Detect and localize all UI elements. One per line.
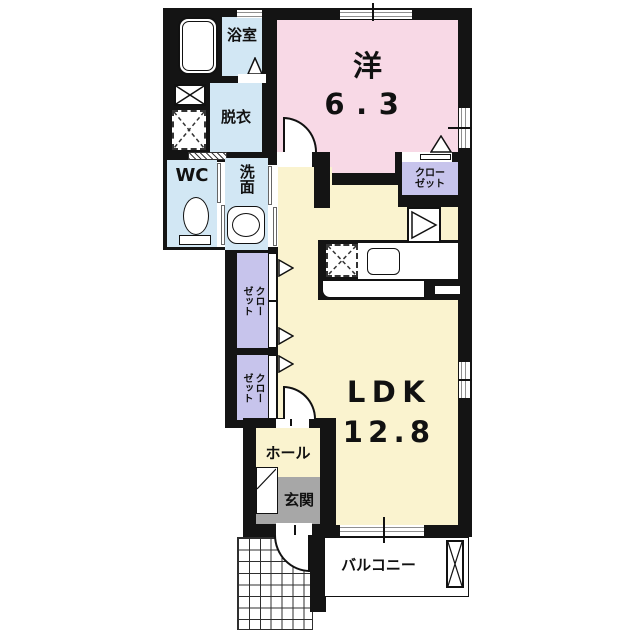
- room-dressing: 脱衣: [210, 83, 262, 152]
- bathtub-icon: [178, 17, 218, 75]
- closet-corridor-upper: クロー ゼット: [237, 253, 268, 348]
- bathroom-door-opening: [238, 74, 266, 83]
- toilet-tank-icon: [179, 235, 211, 245]
- closet-door-panel: [268, 355, 277, 420]
- washbasin-bowl: [232, 213, 260, 237]
- kitchen-counter-front: [322, 280, 425, 298]
- western-size: 6.3: [324, 89, 410, 121]
- closet-label-line1: クロー: [253, 286, 264, 316]
- room-ldk-upper-left: [332, 185, 398, 243]
- ldk-size: 12.8: [343, 417, 435, 449]
- toilet-label: WC: [175, 166, 208, 186]
- bathtub-inner-line: [182, 21, 214, 71]
- western-label: 洋: [353, 51, 382, 83]
- toilet-icon: [183, 197, 209, 235]
- closet-label-line1: クロー: [253, 373, 264, 403]
- balcony-divider-icon: [446, 540, 464, 588]
- closet-label-line2: ゼット: [415, 179, 445, 190]
- room-toilet: WC: [167, 160, 217, 247]
- window-tick: [372, 3, 374, 21]
- closet-door-triangle-icon: [278, 355, 294, 373]
- entrance-label: 玄関: [284, 492, 314, 509]
- washing-machine-icon: [172, 110, 206, 150]
- accordion-door-icon: [188, 152, 227, 160]
- closet-bedroom-door-opening: [402, 152, 452, 162]
- closet-door-panel: [268, 301, 277, 348]
- window-tick: [383, 517, 385, 543]
- floor-plan: 浴室 脱衣 WC 洗面 洋 6.3: [0, 0, 640, 640]
- closet-door-panel: [268, 253, 277, 301]
- window-tick: [448, 127, 472, 129]
- kitchen-washer-space-icon: [326, 244, 358, 277]
- wall-stub-corridor: [314, 152, 330, 208]
- washroom-label: 洗面: [238, 164, 255, 194]
- closet-label-line1: クロー: [415, 168, 445, 179]
- room-ldk-main: LDK 12.8: [320, 300, 458, 525]
- closet-label-line2: ゼット: [241, 286, 252, 316]
- closet-bedroom-door-triangle-icon: [430, 135, 452, 153]
- hall-label: ホール: [265, 445, 310, 462]
- closet-label-line2: ゼット: [241, 373, 252, 403]
- ldk-label: LDK: [347, 377, 431, 409]
- balcony-label: バルコニー: [341, 557, 416, 574]
- kitchen-pass-opening: [435, 286, 460, 294]
- sliding-door-wc: [217, 162, 225, 247]
- room-bathroom: 浴室: [222, 17, 262, 76]
- shoe-cabinet-icon: [256, 467, 278, 514]
- washbasin-icon: [227, 206, 265, 244]
- sliding-door-washroom: [268, 165, 278, 247]
- closet-door-triangle-icon: [278, 259, 294, 277]
- room-washroom: 洗面: [225, 158, 268, 250]
- window-balcony-door: [340, 525, 424, 536]
- window-bathroom-top: [237, 10, 262, 18]
- refrigerator-icon: [407, 207, 441, 243]
- vent-box-icon: [174, 84, 206, 106]
- bathroom-door-triangle-icon: [247, 57, 263, 75]
- bathroom-label: 浴室: [227, 27, 257, 44]
- dressing-label: 脱衣: [221, 109, 251, 126]
- room-western-extension: [330, 152, 395, 173]
- door-opening-western: [277, 152, 312, 167]
- closet-corridor-lower: クロー ゼット: [237, 355, 268, 420]
- window-western-top: [340, 10, 412, 19]
- closet-door-triangle-icon: [278, 327, 294, 345]
- closet-bedroom: クロー ゼット: [402, 162, 458, 195]
- kitchen-sink-icon: [367, 248, 400, 275]
